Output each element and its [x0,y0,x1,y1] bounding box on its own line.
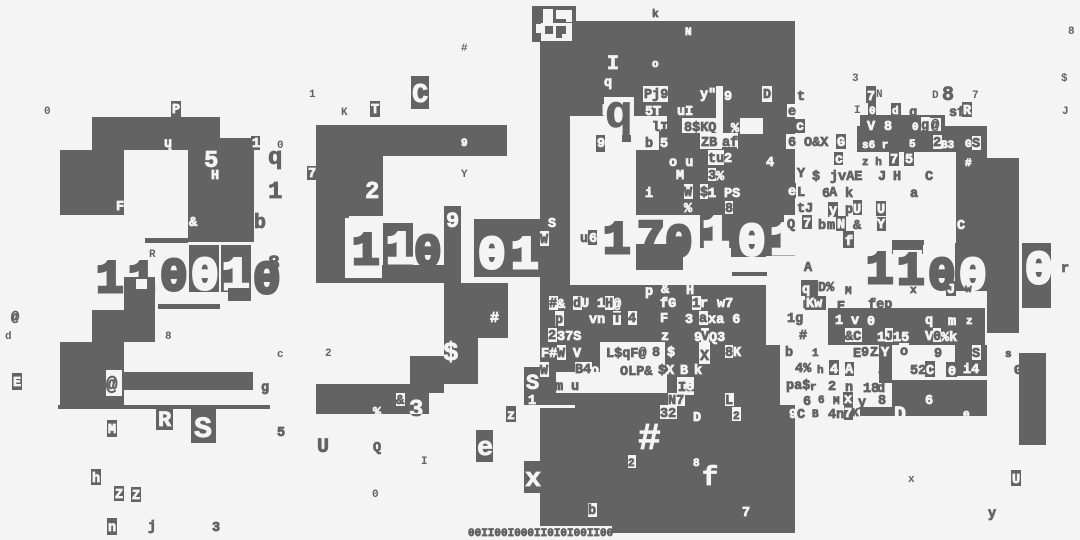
svg-text:1: 1 [96,254,124,306]
svg-text:@: @ [106,374,118,396]
svg-text:5: 5 [277,426,285,441]
svg-text:#: # [799,329,807,344]
svg-text:2: 2 [724,152,732,167]
svg-text:8: 8 [268,253,280,276]
svg-text:U: U [877,203,885,218]
svg-text:ų: ų [164,137,172,152]
svg-text:S: S [548,217,556,232]
svg-text:B: B [812,409,819,421]
svg-text:3: 3 [708,169,716,184]
svg-text:e: e [788,105,796,120]
svg-text:7: 7 [890,153,898,168]
svg-text:1g: 1g [787,312,803,327]
svg-text:m: m [948,315,956,330]
svg-text:o: o [591,364,599,379]
svg-text:x: x [908,474,915,486]
svg-text:&: & [189,216,198,231]
svg-text:4: 4 [766,156,774,171]
svg-text:v: v [851,314,859,329]
svg-text:E: E [853,347,861,362]
svg-text:1: 1 [528,394,536,409]
svg-text:e: e [788,185,796,200]
svg-text:@: @ [613,298,621,313]
svg-text:1: 1 [268,179,282,206]
svg-text:0: 0 [665,218,693,270]
svg-text:#: # [461,43,468,55]
svg-text:tJ: tJ [797,202,813,217]
svg-text:8: 8 [878,394,886,409]
svg-text:E: E [13,376,21,391]
svg-text:7: 7 [308,167,316,182]
svg-text:e: e [477,434,493,464]
svg-text:T: T [371,103,379,118]
svg-text:2: 2 [365,179,379,206]
svg-text:$: $ [700,186,708,201]
svg-text:7: 7 [803,217,811,232]
svg-text:vn: vn [589,313,605,328]
svg-text:B3: B3 [941,140,955,152]
svg-text:fep: fep [868,298,892,313]
svg-text:%: % [684,202,693,217]
svg-text:N: N [876,89,883,101]
svg-text:1: 1 [708,187,716,202]
svg-text:j: j [148,520,156,535]
svg-text:L: L [797,186,805,201]
svg-text:$: $ [667,346,675,361]
svg-text:q: q [925,314,933,329]
svg-text:2: 2 [733,411,740,423]
svg-text:p: p [555,313,563,328]
svg-text:e: e [963,409,970,421]
svg-text:8: 8 [652,346,660,361]
svg-text:$: $ [812,170,820,185]
svg-text:C: C [925,170,933,185]
svg-text:b: b [588,504,596,519]
svg-text:O&X: O&X [804,136,829,151]
svg-text:z: z [966,316,973,328]
svg-text:I: I [607,53,619,76]
svg-text:f: f [702,464,718,494]
svg-text:$: $ [1061,73,1068,85]
svg-text:1: 1 [835,314,843,329]
svg-text:0: 0 [372,489,379,501]
svg-text:6: 6 [589,232,597,247]
svg-text:1: 1 [352,226,380,278]
svg-text:D: D [763,88,771,103]
svg-text:D: D [693,411,701,426]
svg-text:5T: 5T [645,105,661,120]
svg-text:b: b [818,219,826,234]
svg-text:2w: 2w [686,396,700,408]
svg-text:o: o [900,345,908,360]
svg-text:h: h [817,365,824,377]
svg-text:h: h [92,472,100,487]
svg-text:E: E [837,300,845,315]
svg-text:9: 9 [461,138,468,150]
svg-text:J: J [1062,106,1069,118]
svg-text:9: 9 [597,137,605,152]
svg-text:&C: &C [845,330,861,345]
svg-text:3: 3 [212,521,220,536]
svg-text:0: 0 [912,122,919,134]
svg-text:8: 8 [165,331,172,343]
svg-text:T: T [613,312,621,327]
svg-text:Y: Y [461,169,468,181]
svg-text:J: J [878,170,886,185]
svg-text:0: 0 [160,252,188,304]
svg-text:X: X [700,348,709,365]
svg-text:y": y" [700,88,716,103]
svg-text:%: % [373,406,382,421]
svg-text:A: A [845,363,854,378]
svg-text:P: P [172,103,180,118]
svg-text:b: b [254,212,266,235]
svg-text:f: f [845,235,853,250]
svg-text:Q: Q [373,441,381,456]
svg-text:y: y [829,204,837,219]
svg-text:9: 9 [934,347,942,362]
svg-text:1: 1 [309,89,316,101]
svg-text:OLP&: OLP& [620,365,653,380]
svg-text:0: 0 [869,106,876,118]
svg-text:pa$: pa$ [786,379,810,394]
svg-text:u: u [580,232,588,247]
svg-text:4: 4 [583,363,591,378]
svg-text:A: A [829,186,838,201]
svg-text:#: # [638,418,661,461]
svg-text:W: W [557,347,566,362]
svg-text:Z: Z [115,488,123,503]
svg-text:L: L [725,394,733,409]
svg-text:0: 0 [44,106,51,118]
svg-text:C: C [926,364,934,379]
svg-text:tu: tu [708,152,724,167]
svg-text:#: # [965,158,972,170]
svg-text:N: N [837,218,845,233]
svg-text:6: 6 [925,394,933,409]
svg-text:C: C [957,219,965,234]
svg-text:G: G [965,139,972,151]
svg-text:6: 6 [788,136,796,151]
svg-text:1: 1 [812,348,819,360]
svg-text:7: 7 [742,506,750,521]
svg-text:7: 7 [637,214,665,266]
svg-text:0: 0 [948,365,956,380]
svg-text:&: & [396,394,405,409]
svg-text:U: U [1012,473,1020,488]
svg-text:m: m [827,219,835,234]
svg-text:D: D [932,90,939,102]
svg-text:p: p [845,203,853,218]
svg-text:9: 9 [861,346,869,361]
svg-text:r: r [700,297,708,312]
svg-text:a: a [699,312,707,327]
svg-text:6: 6 [818,395,825,407]
svg-text:o: o [652,59,659,71]
svg-text:u: u [571,380,579,395]
svg-text:b: b [645,137,653,152]
svg-text:K: K [733,346,742,361]
svg-text:&: & [557,298,566,313]
svg-text:8: 8 [693,458,700,470]
svg-text:C: C [797,408,805,423]
svg-text:C: C [412,81,428,111]
svg-text:m: m [555,380,563,395]
svg-text:52: 52 [910,364,926,379]
svg-text:1: 1 [386,225,414,277]
svg-text:U: U [581,297,589,312]
svg-text:Y: Y [877,218,886,233]
svg-text:G: G [1014,364,1022,379]
svg-text:F#: F# [541,347,557,362]
svg-text:Q: Q [787,218,795,233]
svg-text:X: X [666,364,675,379]
svg-text:H: H [211,169,219,184]
svg-text:$: $ [443,338,459,368]
svg-text:R: R [963,104,972,119]
svg-text:&: & [853,219,862,234]
svg-text:1: 1 [511,230,539,282]
svg-text:K: K [852,408,859,420]
svg-text:0: 0 [959,251,987,303]
svg-text:jvAE: jvAE [830,170,862,185]
svg-text:R: R [158,408,172,433]
svg-text:U: U [317,436,329,459]
svg-text:q: q [802,283,810,298]
svg-text:w: w [965,284,972,296]
svg-text:5: 5 [905,153,913,168]
svg-text:9: 9 [724,90,732,105]
svg-text:3: 3 [852,73,859,85]
svg-text:J: J [947,283,955,298]
svg-text:c: c [835,153,843,168]
svg-text:8: 8 [884,120,892,135]
svg-text:D: D [894,404,906,427]
svg-text:A: A [804,261,813,276]
svg-text:i: i [878,363,886,378]
svg-text:k: k [845,187,853,202]
svg-text:0: 0 [867,315,875,330]
svg-text:D%: D% [818,281,835,296]
svg-text:g: g [921,119,929,134]
svg-text:s: s [1005,349,1012,361]
svg-text:F: F [660,312,668,327]
svg-text:Q3: Q3 [709,331,725,346]
svg-text:N: N [685,27,692,39]
svg-text:xa 6: xa 6 [708,313,740,328]
svg-text:4: 4 [830,363,838,378]
svg-text:B: B [680,364,688,379]
svg-text:S: S [972,347,980,362]
svg-text:@: @ [931,119,939,134]
svg-text:V: V [573,347,582,362]
svg-text:g: g [909,106,917,121]
svg-text:0: 0 [414,228,442,280]
svg-text:Kw: Kw [806,297,823,312]
svg-text:37S: 37S [557,330,581,345]
svg-text:@: @ [11,311,19,326]
svg-text:8: 8 [725,202,733,217]
svg-text:c: c [796,120,804,135]
svg-text:M: M [676,169,684,184]
svg-text:Z: Z [132,489,140,504]
svg-text:5: 5 [909,139,916,151]
svg-text:7: 7 [844,407,852,422]
svg-text:k: k [694,364,702,379]
svg-text:7: 7 [867,90,875,105]
svg-text:ZB: ZB [701,136,717,151]
svg-text:K: K [341,107,348,119]
svg-text:n: n [108,521,116,536]
svg-text:r: r [1061,262,1069,277]
svg-text:s6 r: s6 r [862,140,888,152]
svg-text:z: z [507,409,515,424]
svg-text:z h: z h [862,157,882,169]
svg-text:t: t [797,90,805,105]
svg-text:7: 7 [972,90,979,102]
svg-text:W: W [540,233,549,248]
svg-text:%k: %k [941,331,957,346]
svg-text:d: d [573,297,581,312]
svg-text:g: g [261,381,269,396]
svg-text:y: y [988,507,996,522]
svg-text:R: R [149,249,156,261]
svg-text:d: d [5,331,12,343]
svg-text:a: a [910,187,918,202]
svg-text:S: S [972,137,980,152]
svg-text:W: W [684,186,693,201]
svg-text:4%: 4% [795,362,812,377]
svg-text:y: y [858,396,866,411]
svg-text:1: 1 [692,297,700,312]
svg-text:#: # [490,310,499,327]
svg-text:4n: 4n [828,408,844,423]
svg-text:%: % [716,170,725,185]
svg-text:2: 2 [325,348,332,360]
svg-text:x: x [910,285,917,297]
svg-text:uI: uI [677,105,693,120]
svg-text:F: F [116,200,124,215]
svg-text:0: 0 [191,251,219,303]
svg-text:q: q [605,89,633,141]
svg-text:PS: PS [724,187,740,202]
svg-text:i4: i4 [963,363,979,378]
svg-text:1: 1 [603,215,631,267]
svg-text:00II00I000II0I0I00II00: 00II00I000II0I0I00II00 [468,528,613,540]
svg-text:k: k [652,9,659,21]
svg-text:fG: fG [660,297,676,312]
svg-text:5: 5 [660,137,668,152]
svg-text:0: 0 [478,230,506,282]
svg-text:U: U [853,203,861,218]
svg-text:2: 2 [628,458,635,470]
svg-text:w7: w7 [717,297,733,312]
svg-text:Y: Y [881,346,890,361]
svg-text:8: 8 [942,84,954,107]
svg-text:8: 8 [1068,26,1075,38]
svg-text:2: 2 [933,136,941,151]
svg-text:H: H [605,297,613,312]
svg-text:W: W [540,364,549,379]
svg-text:2: 2 [828,380,836,395]
svg-text:4: 4 [628,312,636,327]
svg-text:1: 1 [866,245,894,297]
svg-text:z: z [661,330,669,345]
svg-text:I: I [421,456,428,468]
svg-text:c: c [277,349,284,361]
svg-text:V: V [867,120,876,135]
svg-text:x: x [525,465,541,495]
svg-text:b: b [785,346,793,361]
svg-text:M: M [833,396,840,408]
svg-text:B: B [575,363,583,378]
svg-text:&: & [661,283,670,298]
svg-text:#: # [549,297,557,312]
svg-text:d: d [892,106,899,118]
svg-text:9: 9 [789,408,797,423]
svg-text:1: 1 [597,297,605,312]
svg-text:M: M [108,423,116,438]
svg-text:3: 3 [685,313,693,328]
svg-text:0: 0 [686,380,694,395]
svg-text:0: 0 [933,330,941,345]
svg-text:H: H [893,170,901,185]
svg-text:M: M [845,286,852,298]
svg-text:Pj9: Pj9 [644,88,668,103]
svg-text:G: G [837,136,845,151]
svg-text:L$qF@: L$qF@ [606,347,647,362]
svg-text:32: 32 [660,407,676,422]
svg-text:i: i [645,187,653,202]
svg-text:q: q [268,145,282,172]
svg-text:r: r [810,382,817,394]
svg-text:8: 8 [725,346,733,361]
svg-text:1: 1 [252,137,260,152]
svg-text:2: 2 [548,329,556,344]
svg-text:I: I [854,105,861,117]
svg-text:9: 9 [446,209,459,234]
svg-text:$: $ [658,364,666,379]
svg-text:0: 0 [738,217,766,269]
svg-text:Y: Y [797,167,806,182]
svg-text:p: p [645,285,653,300]
svg-text:S: S [526,371,539,396]
svg-text:S: S [194,413,212,447]
